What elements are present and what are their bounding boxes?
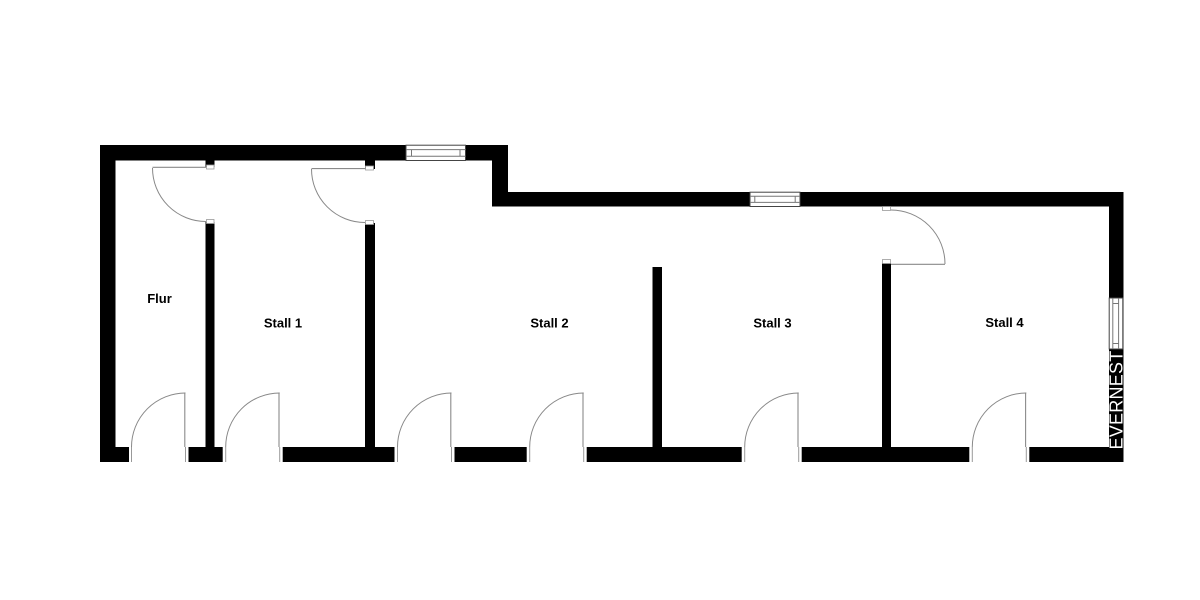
svg-text:Stall 4: Stall 4: [985, 315, 1024, 330]
svg-text:Stall 2: Stall 2: [530, 316, 568, 331]
svg-text:EVERNEST: EVERNEST: [1107, 350, 1127, 449]
svg-text:Flur: Flur: [147, 291, 172, 306]
svg-text:Stall 1: Stall 1: [264, 316, 302, 331]
svg-text:Stall 3: Stall 3: [753, 316, 791, 331]
